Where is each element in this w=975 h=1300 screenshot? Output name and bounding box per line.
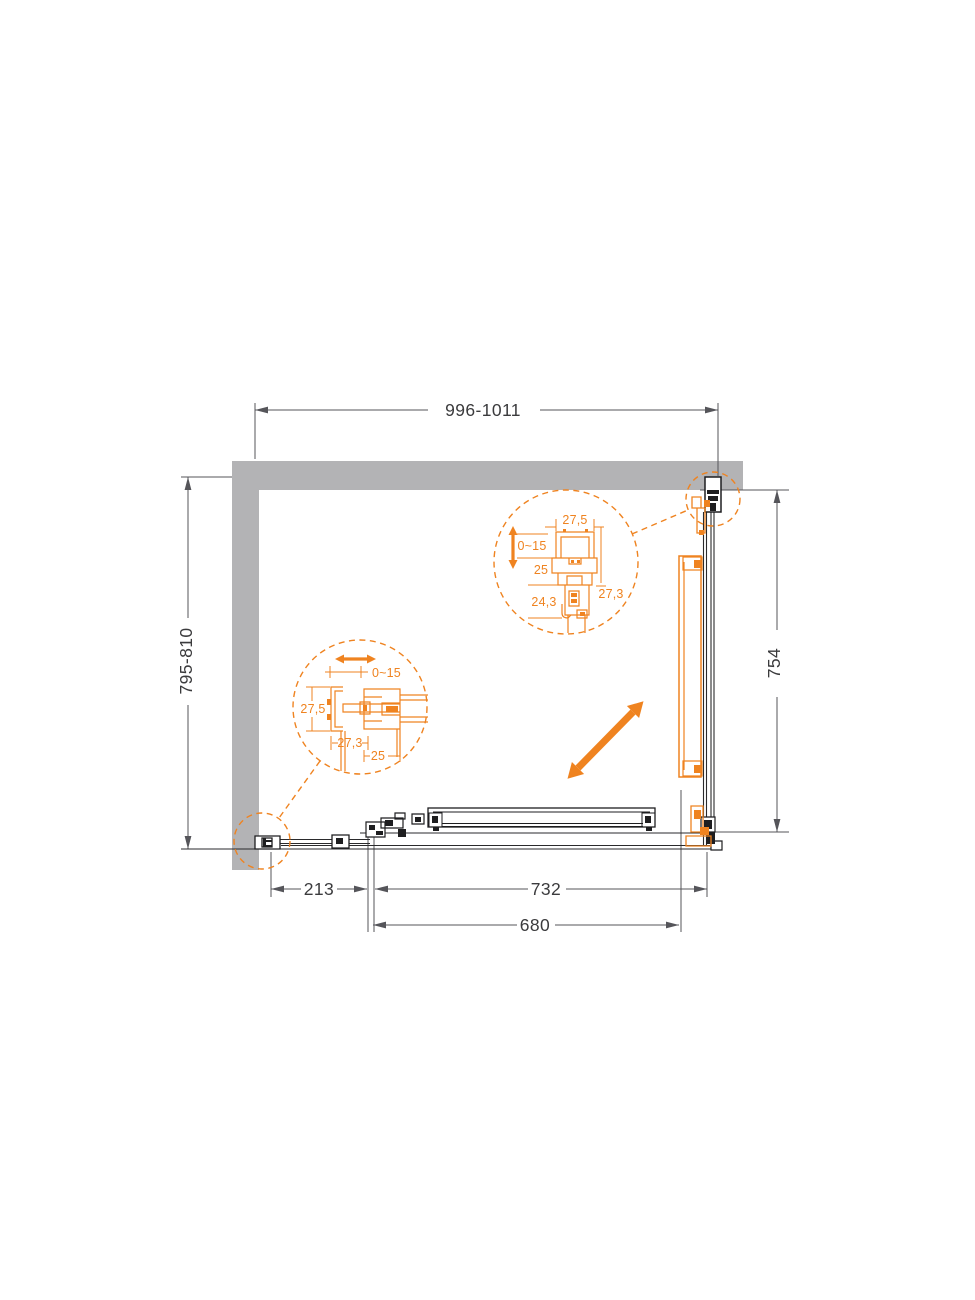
detail-label-profile-height: 27,5 xyxy=(300,702,325,716)
wall-top xyxy=(232,461,743,490)
detail-label-adjustment: 0~15 xyxy=(372,666,401,680)
dimension-label-door-width: 680 xyxy=(520,915,550,935)
arrowhead-down-icon xyxy=(774,819,781,832)
arrow-head xyxy=(509,560,518,569)
arrowhead-left-icon xyxy=(373,922,386,929)
arrowhead-right-icon xyxy=(694,886,707,893)
door-leaf-outline xyxy=(428,808,655,827)
arrowhead-left-icon xyxy=(375,886,388,893)
arrow-shaft xyxy=(578,712,633,768)
arrowhead-down-icon xyxy=(185,836,192,849)
arrowhead-right-icon xyxy=(354,886,367,893)
arrowhead-right-icon xyxy=(705,407,718,414)
dimension-label-wall-offset: 213 xyxy=(304,879,334,899)
right-fixed-glass-panel xyxy=(704,477,722,846)
arrow-head xyxy=(509,526,518,535)
orange-door-fills xyxy=(694,560,701,773)
dimension-label-left-depth: 795-810 xyxy=(176,627,196,694)
arrowhead-right-icon xyxy=(666,922,679,929)
sliding-door-leaf xyxy=(428,808,655,831)
dimension-label-opening-width: 732 xyxy=(531,879,561,899)
detail-top-profile-section: 27,5 0~15 25 27,3 24,3 xyxy=(509,513,624,633)
orange-door-details xyxy=(683,557,702,776)
horizontal-adjust-arrow-icon xyxy=(335,655,376,664)
arrowhead-left-icon xyxy=(271,886,284,893)
detail-dimension-lines xyxy=(517,519,606,618)
arrow-head xyxy=(335,655,344,664)
wall-left xyxy=(232,461,259,870)
dimension-label-top-width: 996-1011 xyxy=(445,400,521,420)
glass-panel-lines xyxy=(704,512,715,846)
detail-label-adjustment: 0~15 xyxy=(518,539,547,553)
callout-leader-line xyxy=(279,761,320,818)
detail-label-mid-depth: 25 xyxy=(534,563,548,577)
detail-label-pocket-depth: 25 xyxy=(371,749,385,763)
arrow-head xyxy=(367,655,376,664)
shower-enclosure-plan-drawing: 996-1011 795-810 754 xyxy=(0,0,975,1300)
arrowhead-up-icon xyxy=(774,490,781,503)
installation-diagram-page: 996-1011 795-810 754 xyxy=(0,0,975,1300)
callout-leader-line xyxy=(632,510,688,534)
arrowhead-up-icon xyxy=(185,477,192,490)
orange-door-leaf xyxy=(679,556,701,777)
vertical-adjust-arrow-icon xyxy=(509,526,518,569)
detail-label-profile-depth: 27,3 xyxy=(337,736,362,750)
detail-label-side-depth: 27,3 xyxy=(598,587,623,601)
arrowhead-left-icon xyxy=(255,407,268,414)
detail-label-profile-width: 27,5 xyxy=(562,513,587,527)
bottom-door-assembly xyxy=(181,808,722,850)
detail-label-lower-depth: 24,3 xyxy=(531,595,556,609)
detail-left-profile-section: 0~15 27,5 27,3 25 xyxy=(300,655,428,772)
dimension-label-right-height: 754 xyxy=(764,648,784,678)
diagonal-double-arrow-icon xyxy=(568,701,644,778)
